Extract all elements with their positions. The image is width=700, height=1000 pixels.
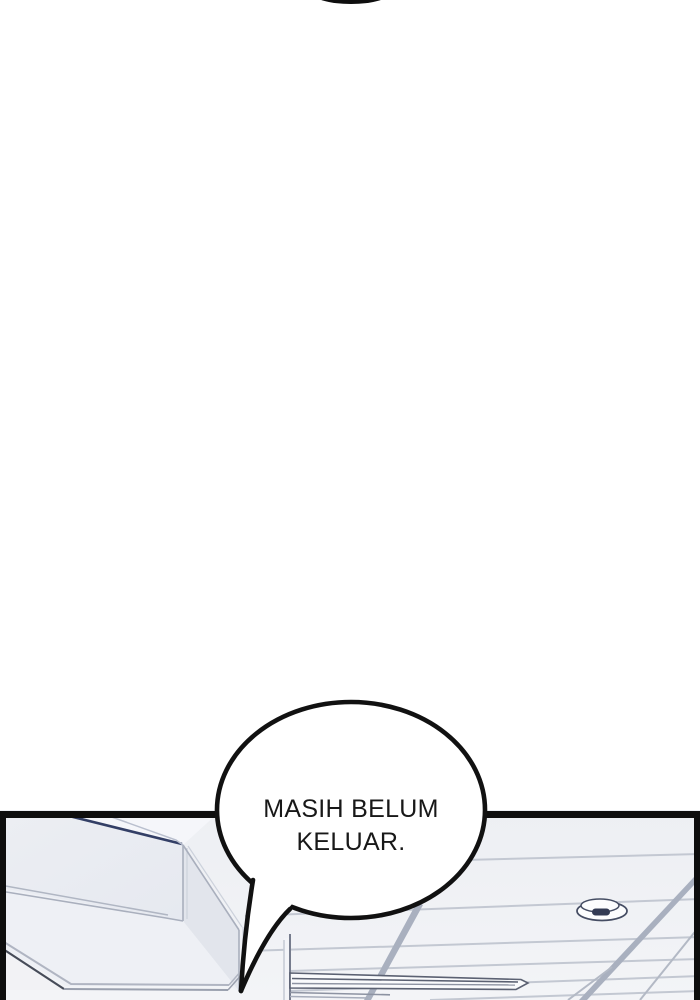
previous-bubble-bottom-arc <box>311 0 391 4</box>
speech-bubble-text: MASIH BELUM KELUAR. <box>226 793 476 859</box>
webtoon-page: MASIH BELUM KELUAR. <box>0 0 700 1000</box>
beam-lower-rail-dark <box>64 989 228 990</box>
panel-border-left <box>0 811 6 1000</box>
speech-bubble-line-2: KELUAR. <box>226 826 476 859</box>
panel-border-right <box>694 811 700 1000</box>
wall-corner <box>284 934 290 1000</box>
speech-bubble-line-1: MASIH BELUM <box>226 793 476 826</box>
smoke-detector-core <box>592 909 610 916</box>
